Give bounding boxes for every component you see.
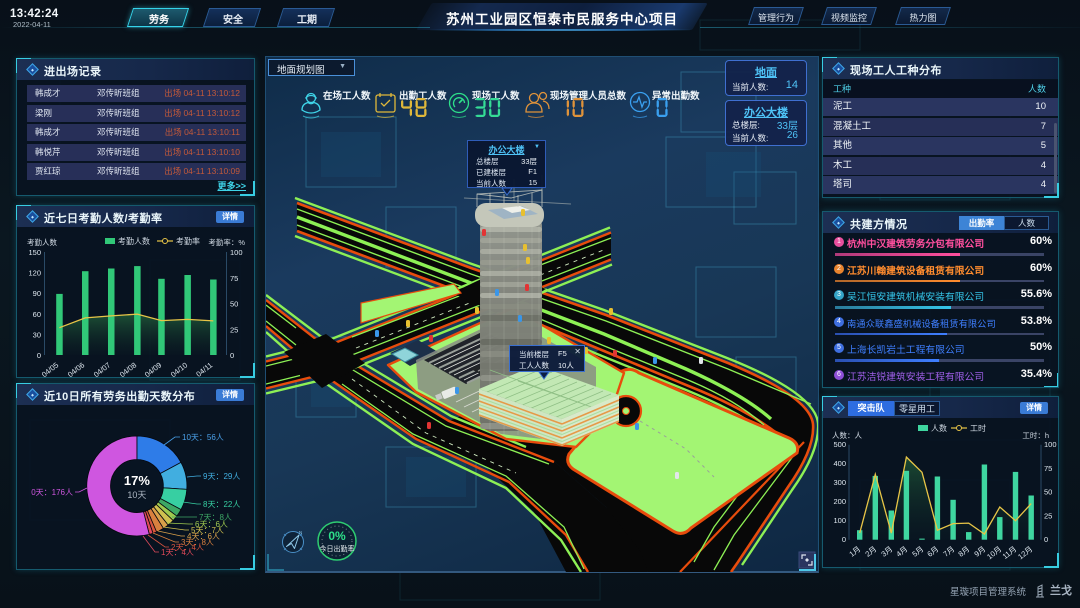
svg-text:12月: 12月	[1016, 544, 1034, 561]
svg-text:10天: 10天	[127, 490, 146, 500]
svg-text:04/10: 04/10	[169, 360, 189, 377]
svg-text:9天：29人: 9天：29人	[203, 472, 240, 481]
svg-text:N: N	[299, 530, 302, 535]
svg-text:50: 50	[1044, 488, 1052, 497]
svg-text:100: 100	[1044, 440, 1057, 449]
svg-text:04/11: 04/11	[194, 360, 214, 377]
svg-text:17%: 17%	[124, 473, 150, 488]
svg-text:75: 75	[230, 274, 238, 283]
svg-text:5月: 5月	[910, 544, 925, 558]
svg-text:04/06: 04/06	[66, 360, 86, 377]
svg-text:6月: 6月	[925, 544, 940, 558]
svg-text:50: 50	[230, 300, 238, 309]
svg-text:120: 120	[28, 269, 41, 278]
svg-text:3月: 3月	[879, 544, 894, 558]
svg-text:4月: 4月	[894, 544, 909, 558]
svg-text:500: 500	[833, 440, 846, 449]
svg-text:今日出勤率: 今日出勤率	[320, 544, 355, 553]
svg-text:考勤率: 考勤率	[176, 236, 200, 246]
svg-text:200: 200	[833, 497, 846, 506]
svg-text:04/09: 04/09	[143, 360, 163, 377]
svg-text:工时：h: 工时：h	[1022, 430, 1049, 440]
svg-text:25: 25	[1044, 512, 1052, 521]
svg-text:300: 300	[833, 478, 846, 487]
svg-text:04/07: 04/07	[92, 360, 112, 377]
svg-text:11月: 11月	[1001, 544, 1019, 561]
svg-text:90: 90	[33, 289, 41, 298]
svg-text:人数：人: 人数：人	[832, 430, 862, 440]
svg-text:1月: 1月	[847, 544, 862, 558]
svg-text:150: 150	[28, 248, 41, 257]
svg-text:100: 100	[833, 516, 846, 525]
svg-text:9月: 9月	[972, 544, 987, 558]
svg-text:工时: 工时	[970, 423, 986, 433]
svg-text:0: 0	[230, 351, 234, 360]
svg-text:100: 100	[230, 248, 243, 257]
svg-text:04/08: 04/08	[118, 360, 138, 377]
svg-text:30: 30	[33, 330, 41, 339]
svg-text:0: 0	[842, 535, 846, 544]
svg-text:04/05: 04/05	[40, 360, 60, 377]
svg-text:2月: 2月	[863, 544, 878, 558]
svg-text:考勤率：%: 考勤率：%	[208, 237, 245, 247]
svg-text:8天：22人: 8天：22人	[203, 500, 240, 509]
svg-text:25: 25	[230, 325, 238, 334]
svg-text:人数: 人数	[931, 423, 947, 433]
svg-text:0: 0	[1044, 535, 1048, 544]
svg-text:1天：4人: 1天：4人	[161, 548, 194, 557]
svg-text:考勤人数: 考勤人数	[118, 236, 150, 246]
svg-text:兰戈: 兰戈	[1050, 583, 1072, 597]
svg-text:10天：56人: 10天：56人	[182, 433, 224, 442]
svg-text:75: 75	[1044, 464, 1052, 473]
svg-text:考勤人数: 考勤人数	[27, 237, 57, 247]
svg-text:0: 0	[37, 351, 41, 360]
svg-text:8月: 8月	[956, 544, 971, 558]
svg-text:60: 60	[33, 310, 41, 319]
svg-text:0天：176人: 0天：176人	[31, 488, 73, 497]
svg-text:7月: 7月	[941, 544, 956, 558]
svg-text:400: 400	[833, 459, 846, 468]
svg-text:0%: 0%	[328, 529, 346, 543]
